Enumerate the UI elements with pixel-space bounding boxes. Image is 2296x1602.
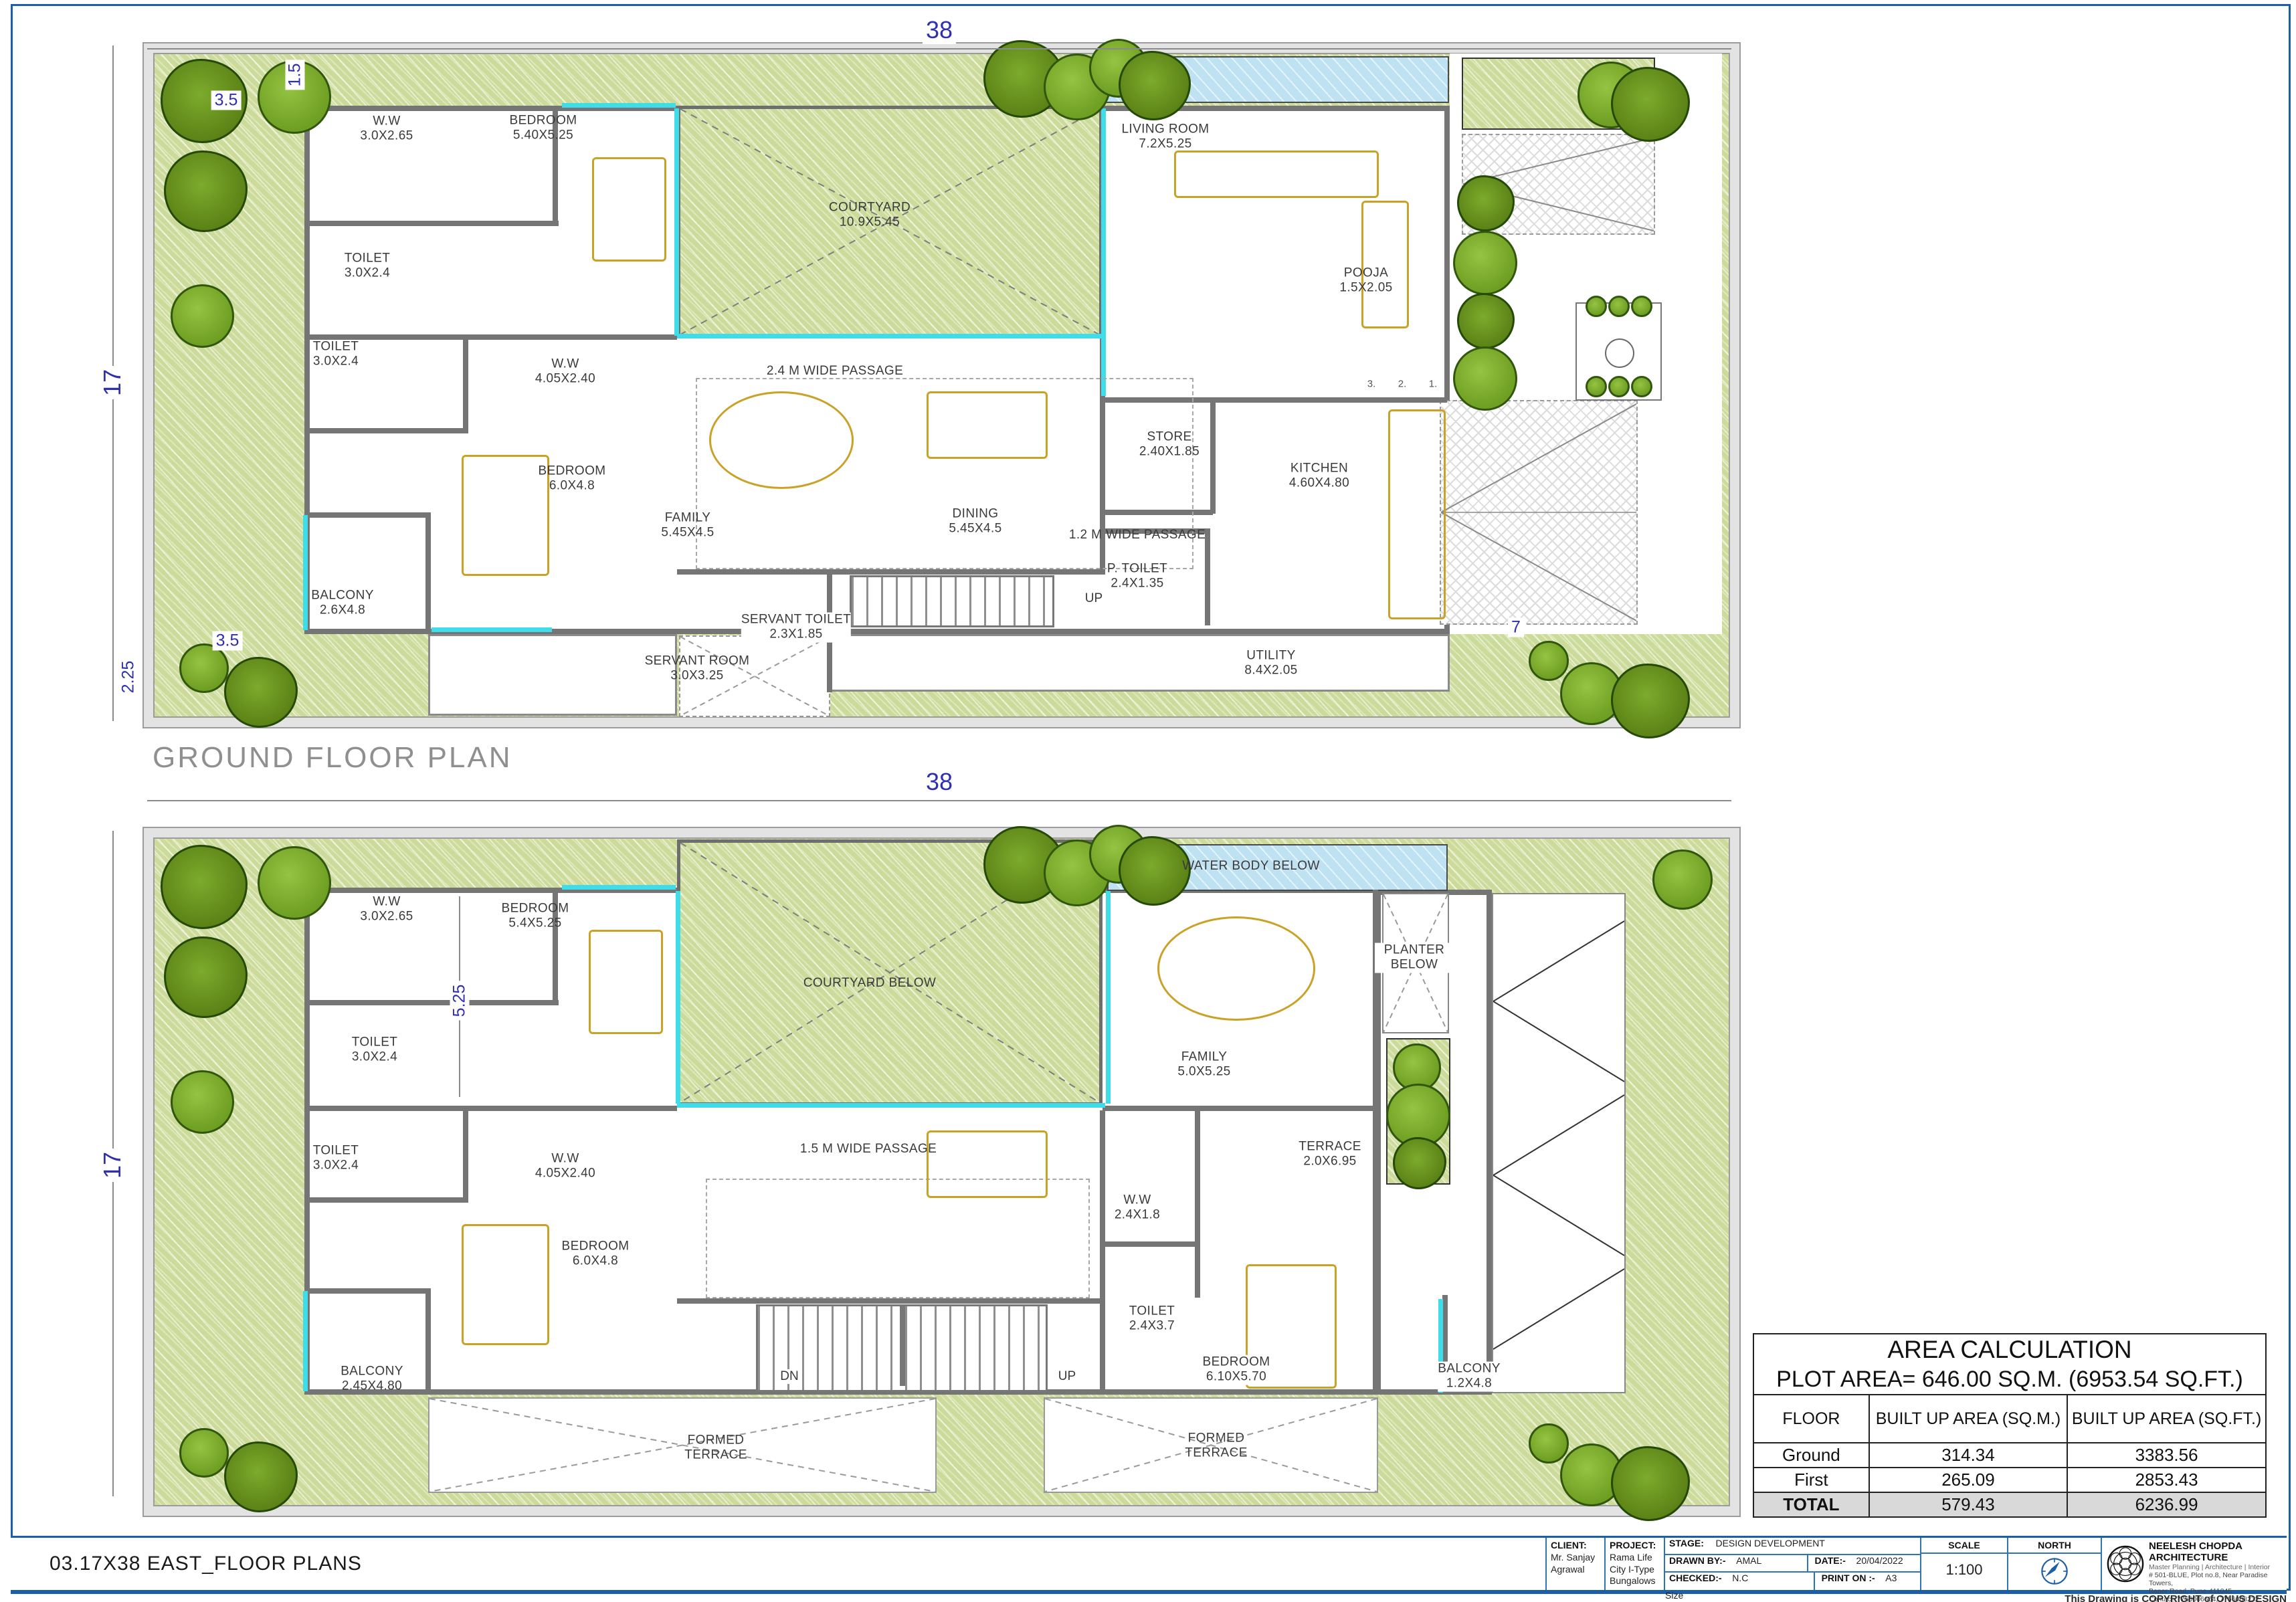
cell-floor: First	[1753, 1468, 1869, 1492]
checked-value: N.C	[1728, 1571, 1752, 1585]
cell-floor: TOTAL	[1753, 1492, 1869, 1517]
wall	[677, 569, 1105, 575]
passage-label: 1.2 M WIDE PASSAGE	[1069, 528, 1206, 542]
window	[676, 891, 680, 1104]
room-label: W.W2.4X1.8	[1115, 1193, 1160, 1223]
col-header-sqft: BUILT UP AREA (SQ.FT.)	[2067, 1395, 2266, 1443]
cell-sqft: 6236.99	[2067, 1492, 2266, 1517]
copyright-note: This Drawing is COPYRIGHT of ONUS DESIGN	[2065, 1593, 2287, 1602]
tree-icon	[1453, 231, 1517, 295]
north-label: NORTH	[2008, 1538, 2101, 1554]
room-label: W.W3.0X2.65	[360, 114, 413, 144]
wall	[304, 1106, 677, 1111]
checked-label: CHECKED:-	[1665, 1571, 1726, 1583]
room-label: COURTYARD BELOW	[803, 976, 937, 991]
wall	[1103, 1241, 1198, 1247]
furniture-kitchen-counter	[1388, 409, 1446, 619]
room-label: WATER BODY BELOW	[1182, 859, 1320, 874]
cell-sqm: 265.09	[1869, 1468, 2067, 1492]
dimension-value: 1.5	[286, 60, 305, 90]
room-label: TOILET3.0X2.4	[352, 1035, 398, 1066]
wall	[304, 1000, 559, 1005]
sheet-title: 03.17X38 EAST_FLOOR PLANS	[50, 1553, 362, 1575]
dimension-value: 3.5	[211, 91, 242, 110]
room-label: BEDROOM5.40X5.25	[510, 114, 577, 144]
scale-label: SCALE	[1921, 1538, 2007, 1554]
room-label: TOILET3.0X2.4	[313, 1144, 359, 1174]
wall	[1195, 1110, 1200, 1298]
area-calculation-table: AREA CALCULATION PLOT AREA= 646.00 SQ.M.…	[1753, 1333, 2267, 1518]
tree-icon	[179, 1428, 229, 1478]
tree-icon	[1586, 376, 1607, 397]
drawn-by-label: DRAWN BY:-	[1665, 1553, 1730, 1566]
tree-icon	[1631, 296, 1652, 317]
project-value: Rama Life City I-Type Bungalows	[1606, 1550, 1664, 1589]
furniture-family-seating	[709, 391, 854, 489]
dimension-value: 5.25	[450, 981, 470, 1021]
project-cell: PROJECT: Rama Life City I-Type Bungalows	[1604, 1538, 1664, 1590]
room-label: W.W4.05X2.40	[535, 357, 595, 387]
room-label: FORMED TERRACE	[1177, 1431, 1256, 1462]
dimension-value: 17	[98, 366, 126, 399]
wall	[463, 338, 468, 431]
first-side-terrace	[1492, 893, 1626, 1393]
wall	[425, 512, 431, 631]
firm-address-1: # 501-BLUE, Plot no.8, Near Paradise Tow…	[2149, 1571, 2287, 1587]
wall	[304, 1197, 468, 1203]
tree-icon	[171, 284, 234, 348]
dimension-value: 38	[923, 16, 956, 44]
tree-icon	[179, 643, 229, 693]
plot-area-line: PLOT AREA= 646.00 SQ.M. (6953.54 SQ.FT.)	[1753, 1365, 2266, 1395]
dimension-value: 38	[923, 768, 956, 796]
tree-icon	[1529, 641, 1569, 681]
dimension-value: 3.5	[213, 631, 243, 651]
room-label: POOJA1.5X2.05	[1339, 266, 1392, 296]
room-label: STORE2.40X1.85	[1139, 430, 1200, 460]
dimension-line	[147, 48, 1731, 49]
room-label: TOILET3.0X2.4	[345, 252, 391, 282]
furniture-bed	[589, 930, 663, 1034]
firm-cell: NEELESH CHOPDA ARCHITECTURE Master Plann…	[2101, 1538, 2287, 1590]
room-label: UTILITY8.4X2.05	[1244, 649, 1297, 679]
room-label: TOILET3.0X2.4	[313, 340, 359, 370]
room-label: BALCONY2.6X4.8	[311, 589, 374, 619]
room-label: BEDROOM6.0X4.8	[562, 1239, 630, 1270]
wall	[304, 512, 430, 518]
dimension-value: 2.25	[119, 658, 138, 697]
window	[303, 515, 308, 630]
table-row: First 265.09 2853.43	[1753, 1468, 2266, 1492]
dimension-value: 17	[98, 1148, 126, 1182]
wall	[677, 1298, 1105, 1304]
area-table-title: AREA CALCULATION	[1753, 1334, 2266, 1365]
room-label: PLANTER BELOW	[1375, 943, 1454, 973]
client-value: Mr. Sanjay Agrawal	[1547, 1550, 1604, 1577]
wall	[1373, 890, 1378, 1110]
wall	[304, 221, 559, 226]
room-label: BEDROOM6.0X4.8	[539, 464, 606, 494]
stage-label: STAGE:	[1665, 1536, 1708, 1548]
stair-divider	[900, 1306, 905, 1386]
tree-icon	[1608, 296, 1630, 317]
room-label: BALCONY2.45X4.80	[341, 1365, 403, 1395]
client-label: CLIENT:	[1547, 1538, 1604, 1550]
ground-servant-block	[428, 634, 677, 716]
ground-staircase	[850, 575, 1054, 627]
stage-value: DESIGN DEVELOPMENT	[1710, 1536, 1828, 1550]
furniture-dining-table	[927, 1130, 1048, 1198]
wall	[1103, 1106, 1378, 1111]
project-label: PROJECT:	[1606, 1538, 1664, 1550]
window	[562, 103, 676, 108]
ground-plan-title: GROUND FLOOR PLAN	[153, 741, 512, 775]
wall	[1205, 528, 1210, 625]
grid-label: 1.	[1429, 379, 1438, 390]
passage-label: 1.5 M WIDE PASSAGE	[800, 1142, 937, 1157]
wall	[1100, 1110, 1105, 1395]
grid-label: 2.	[1398, 379, 1407, 390]
wall	[1210, 403, 1216, 514]
room-label: BALCONY1.2X4.8	[1438, 1362, 1501, 1392]
room-label: P. TOILET2.4X1.35	[1107, 562, 1167, 592]
dimension-line	[147, 800, 1731, 801]
cell-sqm: 314.34	[1869, 1443, 2067, 1468]
north-compass-icon	[2040, 1557, 2069, 1586]
col-header-sqm: BUILT UP AREA (SQ.M.)	[1869, 1395, 2067, 1443]
window	[562, 885, 676, 890]
tree-icon	[1586, 296, 1607, 317]
stair-direction-label: UP	[1085, 591, 1103, 606]
grid-label: 3.	[1367, 379, 1376, 390]
gate-swing-icon	[1441, 401, 1636, 623]
col-header-floor: FLOOR	[1753, 1395, 1869, 1443]
wall	[425, 1288, 431, 1392]
window	[677, 1103, 1105, 1108]
tree-icon	[171, 1070, 234, 1134]
date-label: DATE:-	[1811, 1553, 1850, 1566]
room-label: FAMILY5.45X4.5	[661, 511, 714, 541]
window	[1101, 108, 1106, 396]
passage-label: 2.4 M WIDE PASSAGE	[767, 364, 903, 379]
wall	[304, 428, 468, 433]
tree-icon	[1608, 376, 1630, 397]
window	[674, 108, 679, 336]
cell-floor: Ground	[1753, 1443, 1869, 1468]
room-label: SERVANT TOILET2.3X1.85	[741, 613, 851, 643]
ornament-icon	[1605, 338, 1634, 368]
firm-name: NEELESH CHOPDA ARCHITECTURE	[2149, 1540, 2287, 1563]
tree-icon	[1652, 849, 1713, 910]
stair-direction-label: UP	[1056, 1369, 1078, 1384]
table-row: Ground 314.34 3383.56	[1753, 1443, 2266, 1468]
print-on-label: PRINT ON :-	[1818, 1571, 1879, 1583]
window	[1106, 891, 1111, 1104]
date-value: 20/04/2022	[1852, 1554, 1907, 1567]
room-label: TOILET2.4X3.7	[1129, 1304, 1175, 1334]
title-block: 03.17X38 EAST_FLOOR PLANS CLIENT: Mr. Sa…	[11, 1536, 2287, 1594]
window	[432, 627, 552, 632]
room-label: LIVING ROOM7.2X5.25	[1121, 122, 1209, 153]
room-label: SERVANT ROOM3.0X3.25	[645, 654, 750, 684]
tree-icon	[258, 846, 331, 920]
stage-cell: STAGE: DESIGN DEVELOPMENT DRAWN BY:- AMA…	[1664, 1538, 1920, 1590]
room-label: BEDROOM5.4X5.25	[502, 902, 569, 932]
furniture-family-seating	[1157, 916, 1315, 1021]
tree-icon	[1453, 346, 1517, 411]
furniture-dining-table	[927, 391, 1048, 459]
scale-value: 1:100	[1921, 1554, 2007, 1581]
firm-tagline: Master Planning | Architecture | Interio…	[2149, 1563, 2287, 1571]
furniture-bed	[592, 157, 666, 262]
drawn-by-value: AMAL	[1732, 1554, 1765, 1567]
window	[677, 334, 1105, 338]
room-label: DINING5.45X4.5	[949, 507, 1001, 537]
cell-sqft: 3383.56	[2067, 1443, 2266, 1468]
chevron-hatch-icon	[1493, 894, 1624, 1392]
client-cell: CLIENT: Mr. Sanjay Agrawal	[1545, 1538, 1604, 1590]
room-label: FAMILY5.0X5.25	[1177, 1050, 1230, 1080]
cell-sqm: 579.43	[1869, 1492, 2067, 1517]
ground-utility-strip	[830, 634, 1450, 692]
furniture-sofa	[1361, 201, 1409, 328]
room-label: KITCHEN4.60X4.80	[1289, 462, 1349, 492]
furniture-sofa	[1174, 151, 1379, 198]
table-row-total: TOTAL 579.43 6236.99	[1753, 1492, 2266, 1517]
window	[303, 1291, 308, 1391]
room-label: TERRACE2.0X6.95	[1299, 1140, 1361, 1170]
tree-icon	[1631, 376, 1652, 397]
scale-cell: SCALE 1:100	[1920, 1538, 2007, 1590]
wall	[304, 334, 677, 340]
dimension-value: 7	[1508, 618, 1524, 637]
room-label: W.W4.05X2.40	[535, 1152, 595, 1182]
room-label: BEDROOM6.10X5.70	[1203, 1355, 1270, 1385]
firm-logo-icon	[2106, 1544, 2145, 1583]
ground-parking-bay	[1440, 400, 1638, 625]
stair-direction-label: DN	[777, 1369, 801, 1384]
north-cell: NORTH	[2007, 1538, 2101, 1590]
room-label: FORMED TERRACE	[676, 1433, 755, 1464]
room-label: COURTYARD10.9X5.45	[829, 201, 911, 231]
furniture-bed	[462, 455, 549, 576]
furniture-bed	[462, 1224, 549, 1345]
wall	[304, 1288, 430, 1294]
room-label: W.W3.0X2.65	[360, 895, 413, 925]
tree-icon	[1529, 1423, 1569, 1464]
wall	[463, 1106, 468, 1201]
drawing-sheet: 38 17 3.5 1.5 3.5 2.25 7 3. 2. 1. W.W3.0…	[0, 0, 2296, 1602]
cell-sqft: 2853.43	[2067, 1468, 2266, 1492]
